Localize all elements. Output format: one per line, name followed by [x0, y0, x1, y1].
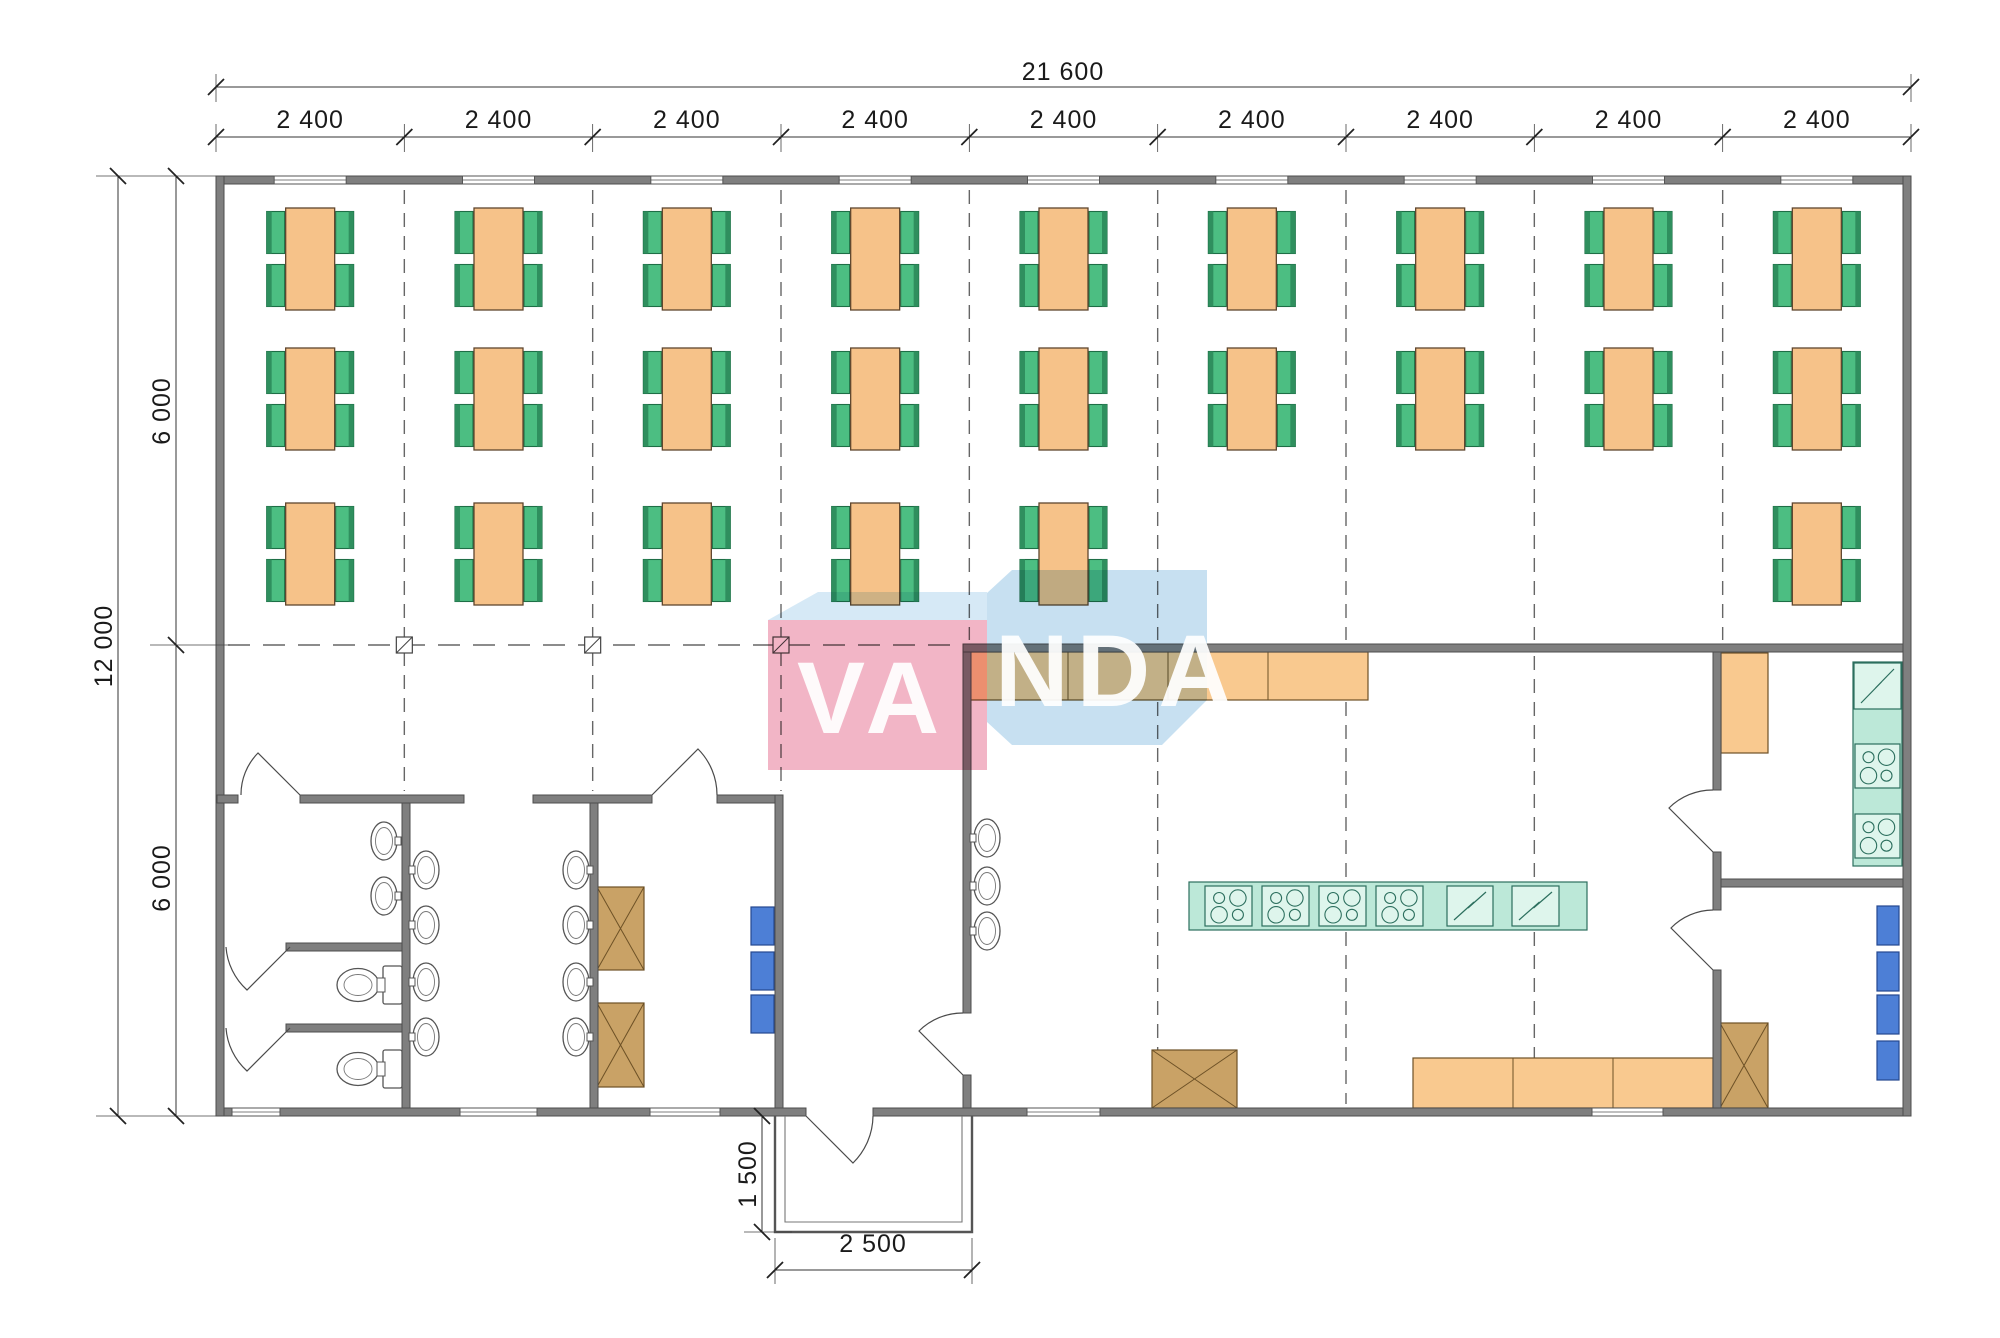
- sink-tap-icon: [409, 921, 415, 929]
- dining-table-group: [267, 208, 354, 310]
- sink: [409, 963, 439, 1001]
- chair-back: [1585, 212, 1590, 254]
- chair-back: [455, 507, 460, 549]
- chair-back: [914, 405, 919, 447]
- porch-inner-outline: [785, 1116, 962, 1222]
- bay-dimension-label: 2 400: [465, 106, 533, 134]
- sink: [371, 877, 401, 915]
- chair-back: [832, 212, 837, 254]
- door: [226, 947, 290, 990]
- dining-table-group: [1020, 208, 1107, 310]
- sink-tap-icon: [587, 1033, 593, 1041]
- chair-back: [643, 560, 648, 602]
- chair-back: [1585, 352, 1590, 394]
- floor-plan-page: 21 600 12 000 6 000 6 000 1 500 2 500 2 …: [0, 0, 2000, 1338]
- door: [1669, 790, 1713, 852]
- chair-back: [1020, 507, 1025, 549]
- table: [662, 503, 711, 605]
- dining-table-group: [455, 348, 542, 450]
- chair-back: [1102, 405, 1107, 447]
- table: [662, 348, 711, 450]
- table: [1039, 348, 1088, 450]
- sink: [970, 819, 1000, 857]
- table: [1792, 208, 1841, 310]
- table: [662, 208, 711, 310]
- dining-table-group: [1208, 208, 1295, 310]
- table: [1604, 348, 1653, 450]
- table: [1227, 348, 1276, 450]
- chair-back: [1855, 212, 1860, 254]
- table: [286, 348, 335, 450]
- dining-table-group: [643, 208, 730, 310]
- chair-back: [349, 212, 354, 254]
- sink-tap-icon: [395, 837, 401, 845]
- sink-tap-icon: [587, 866, 593, 874]
- locker: [1877, 906, 1899, 945]
- sink-tap-icon: [587, 921, 593, 929]
- toilet: [337, 966, 402, 1004]
- chair-back: [643, 212, 648, 254]
- chair-back: [349, 507, 354, 549]
- counter: [1721, 653, 1768, 753]
- chair-back: [1479, 265, 1484, 307]
- locker: [751, 907, 774, 945]
- dining-table-group: [1020, 348, 1107, 450]
- dimension-depth-upper: 6 000: [148, 377, 176, 445]
- chair-back: [725, 507, 730, 549]
- sink: [371, 822, 401, 860]
- chair-back: [725, 405, 730, 447]
- chair-back: [725, 212, 730, 254]
- chair-back: [1102, 352, 1107, 394]
- chair-back: [1479, 405, 1484, 447]
- dining-table-group: [455, 208, 542, 310]
- locker: [1877, 952, 1899, 991]
- chair-back: [267, 352, 272, 394]
- chair-back: [1855, 405, 1860, 447]
- table: [1792, 503, 1841, 605]
- chair-back: [349, 352, 354, 394]
- chair-back: [725, 560, 730, 602]
- chair-back: [1020, 212, 1025, 254]
- stove: [1376, 886, 1423, 926]
- chair-back: [1585, 405, 1590, 447]
- chair-back: [1208, 405, 1213, 447]
- locker: [751, 995, 774, 1033]
- wall: [286, 1024, 402, 1032]
- chair-back: [1667, 352, 1672, 394]
- chair-back: [455, 265, 460, 307]
- chair-back: [1102, 507, 1107, 549]
- wall: [1713, 652, 1721, 790]
- table: [1039, 208, 1088, 310]
- dining-table-group: [832, 348, 919, 450]
- chair-back: [349, 405, 354, 447]
- bay-dimension-label: 2 400: [1595, 106, 1663, 134]
- dining-table-group: [455, 503, 542, 605]
- watermark-text-left: VA: [797, 641, 947, 755]
- dining-table-group: [1397, 208, 1484, 310]
- dining-table-group: [1585, 348, 1672, 450]
- wall: [775, 795, 783, 1108]
- sink-tap-icon: [587, 978, 593, 986]
- chair-back: [1290, 405, 1295, 447]
- dining-table-group: [832, 503, 919, 605]
- chair-back: [267, 265, 272, 307]
- porch-outline: [775, 1116, 972, 1232]
- chair-back: [1290, 265, 1295, 307]
- chair-back: [455, 212, 460, 254]
- chair-back: [1397, 212, 1402, 254]
- dining-table-group: [267, 503, 354, 605]
- stove: [1319, 886, 1366, 926]
- chair-back: [1773, 212, 1778, 254]
- table: [1416, 348, 1465, 450]
- chair-back: [1773, 405, 1778, 447]
- sanitary-layer: [337, 819, 1000, 1088]
- floor-plan-canvas: 21 600 12 000 6 000 6 000 1 500 2 500 2 …: [0, 0, 2000, 1338]
- chair-back: [1102, 212, 1107, 254]
- door: [1671, 910, 1713, 970]
- watermark-text-right: NDA: [995, 614, 1240, 728]
- dimension-total-depth: 12 000: [90, 605, 118, 687]
- chair-back: [1773, 352, 1778, 394]
- wall: [1903, 176, 1911, 1116]
- table: [286, 503, 335, 605]
- table: [286, 208, 335, 310]
- sink-tap-icon: [409, 1033, 415, 1041]
- dining-table-group: [643, 503, 730, 605]
- chair-back: [725, 352, 730, 394]
- sink: [563, 963, 593, 1001]
- stove: [1262, 886, 1309, 926]
- dining-table-group: [1773, 348, 1860, 450]
- wall: [1713, 970, 1721, 1108]
- counter: [1413, 1058, 1713, 1108]
- bay-dimension-label: 2 400: [653, 106, 721, 134]
- dining-table-group: [1773, 503, 1860, 605]
- chair-back: [1397, 265, 1402, 307]
- chair-back: [1855, 352, 1860, 394]
- bay-dimension-label: 2 400: [276, 106, 344, 134]
- table: [851, 503, 900, 605]
- sink: [409, 906, 439, 944]
- sink: [409, 851, 439, 889]
- dining-table-group: [267, 348, 354, 450]
- locker: [1877, 995, 1899, 1034]
- bay-dimension-label: 2 400: [1030, 106, 1098, 134]
- door: [652, 749, 717, 795]
- table: [851, 208, 900, 310]
- table: [851, 348, 900, 450]
- chair-back: [1773, 507, 1778, 549]
- chair-back: [1585, 265, 1590, 307]
- chair-back: [1667, 212, 1672, 254]
- chair-back: [267, 560, 272, 602]
- chair-back: [832, 405, 837, 447]
- sink: [563, 851, 593, 889]
- chair-back: [1208, 212, 1213, 254]
- chair-back: [643, 352, 648, 394]
- toilet-bowl: [337, 969, 379, 1002]
- dining-table-group: [643, 348, 730, 450]
- bay-dimension-label: 2 400: [1218, 106, 1286, 134]
- sink-tap-icon: [970, 882, 976, 890]
- locker: [751, 952, 774, 990]
- wall: [590, 803, 598, 1108]
- bay-dimension-label: 2 400: [1783, 106, 1851, 134]
- chair-back: [1397, 405, 1402, 447]
- toilet-tank: [383, 1050, 402, 1088]
- chair-back: [1290, 212, 1295, 254]
- table: [474, 503, 523, 605]
- chair-back: [1290, 352, 1295, 394]
- chair-back: [1102, 265, 1107, 307]
- chair-back: [267, 507, 272, 549]
- chair-back: [267, 405, 272, 447]
- chair-back: [1208, 265, 1213, 307]
- table: [1792, 348, 1841, 450]
- chair-back: [537, 265, 542, 307]
- watermark-bevel-shape: [768, 592, 987, 620]
- chair-back: [537, 405, 542, 447]
- chair-back: [1773, 265, 1778, 307]
- chair-back: [914, 507, 919, 549]
- toilet: [337, 1050, 402, 1088]
- chair-back: [1773, 560, 1778, 602]
- chair-back: [1020, 352, 1025, 394]
- chair-back: [1397, 352, 1402, 394]
- dining-tables-layer: [267, 208, 1861, 605]
- door: [226, 1028, 290, 1071]
- dining-table-group: [832, 208, 919, 310]
- locker: [1877, 1041, 1899, 1080]
- chair-back: [349, 265, 354, 307]
- table: [474, 348, 523, 450]
- door: [241, 753, 300, 795]
- table: [1416, 208, 1465, 310]
- chair-back: [1855, 507, 1860, 549]
- chair-back: [537, 212, 542, 254]
- door: [806, 1116, 873, 1163]
- wall: [1713, 852, 1721, 910]
- chair-back: [455, 352, 460, 394]
- wall: [402, 803, 410, 1108]
- sink: [563, 906, 593, 944]
- sink-tap-icon: [409, 978, 415, 986]
- chair-back: [832, 352, 837, 394]
- table: [474, 208, 523, 310]
- chair-back: [1479, 212, 1484, 254]
- toilet-seat-hinge: [377, 978, 385, 992]
- stove: [1205, 886, 1252, 926]
- chair-back: [537, 507, 542, 549]
- chair-back: [1020, 265, 1025, 307]
- wall: [963, 1075, 971, 1108]
- chair-back: [725, 265, 730, 307]
- table: [1604, 208, 1653, 310]
- wall: [217, 795, 238, 803]
- sink-tap-icon: [970, 927, 976, 935]
- chair-back: [537, 560, 542, 602]
- chair-back: [643, 507, 648, 549]
- sink-tap-icon: [409, 866, 415, 874]
- chair-back: [1667, 265, 1672, 307]
- porch-layer: [775, 1116, 972, 1232]
- sink-tap-icon: [970, 834, 976, 842]
- wall: [286, 943, 402, 951]
- wall: [717, 795, 775, 803]
- dining-table-group: [1773, 208, 1860, 310]
- chair-back: [914, 265, 919, 307]
- bay-dimension-label: 2 400: [841, 106, 909, 134]
- dimension-total-width: 21 600: [1022, 58, 1104, 86]
- dining-table-group: [1208, 348, 1295, 450]
- chair-back: [537, 352, 542, 394]
- sink: [970, 912, 1000, 950]
- chair-back: [643, 405, 648, 447]
- chair-back: [1208, 352, 1213, 394]
- toilet-tank: [383, 966, 402, 1004]
- bay-dimension-label: 2 400: [1406, 106, 1474, 134]
- wall: [1721, 879, 1903, 887]
- wall: [300, 795, 464, 803]
- dimension-porch-depth: 1 500: [734, 1140, 762, 1208]
- dining-table-group: [1585, 208, 1672, 310]
- sink-tap-icon: [395, 892, 401, 900]
- chair-back: [1855, 265, 1860, 307]
- chair-back: [1479, 352, 1484, 394]
- sink: [409, 1018, 439, 1056]
- sink: [970, 867, 1000, 905]
- chair-back: [643, 265, 648, 307]
- watermark: VA NDA: [768, 570, 1240, 770]
- chair-back: [914, 352, 919, 394]
- chair-back: [349, 560, 354, 602]
- chair-back: [455, 560, 460, 602]
- toilet-bowl: [337, 1053, 379, 1086]
- dimension-depth-lower: 6 000: [148, 844, 176, 912]
- sink: [563, 1018, 593, 1056]
- table: [1227, 208, 1276, 310]
- dimension-porch-width: 2 500: [839, 1230, 907, 1258]
- wall: [216, 176, 224, 1116]
- chair-back: [1667, 405, 1672, 447]
- chair-back: [1020, 405, 1025, 447]
- chair-back: [832, 265, 837, 307]
- chair-back: [1855, 560, 1860, 602]
- door: [919, 1013, 963, 1075]
- chair-back: [914, 212, 919, 254]
- stove: [1855, 814, 1900, 858]
- chair-back: [832, 507, 837, 549]
- toilet-seat-hinge: [377, 1062, 385, 1076]
- stove: [1855, 744, 1900, 788]
- wall: [533, 795, 652, 803]
- chair-back: [267, 212, 272, 254]
- chair-back: [455, 405, 460, 447]
- dining-table-group: [1397, 348, 1484, 450]
